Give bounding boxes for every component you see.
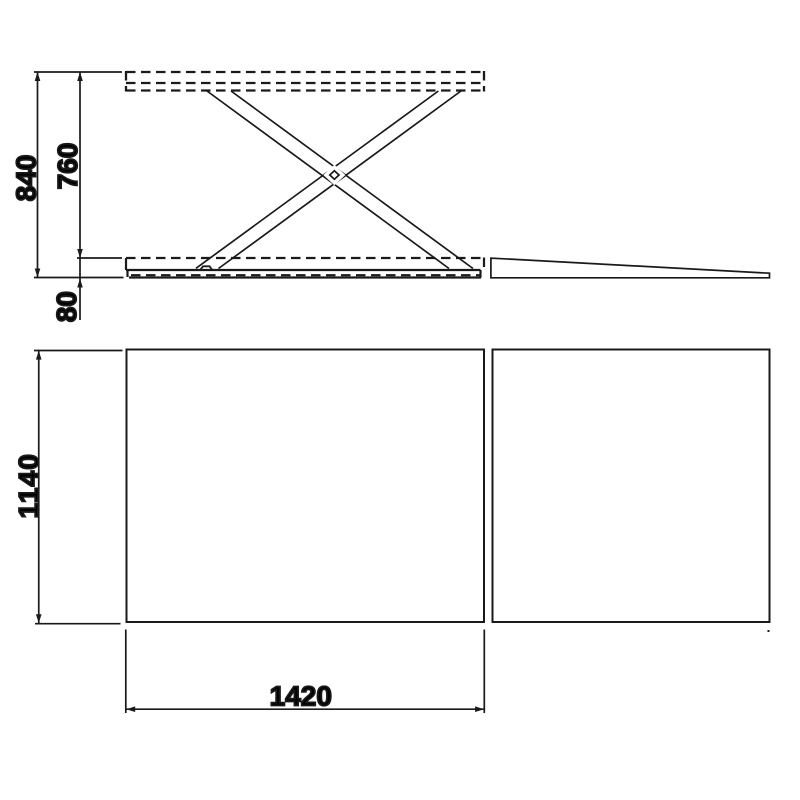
svg-text:760: 760 — [52, 143, 83, 190]
svg-text:80: 80 — [51, 291, 82, 322]
svg-text:1420: 1420 — [270, 681, 332, 712]
svg-text:840: 840 — [10, 155, 41, 202]
svg-text:1140: 1140 — [13, 453, 44, 519]
